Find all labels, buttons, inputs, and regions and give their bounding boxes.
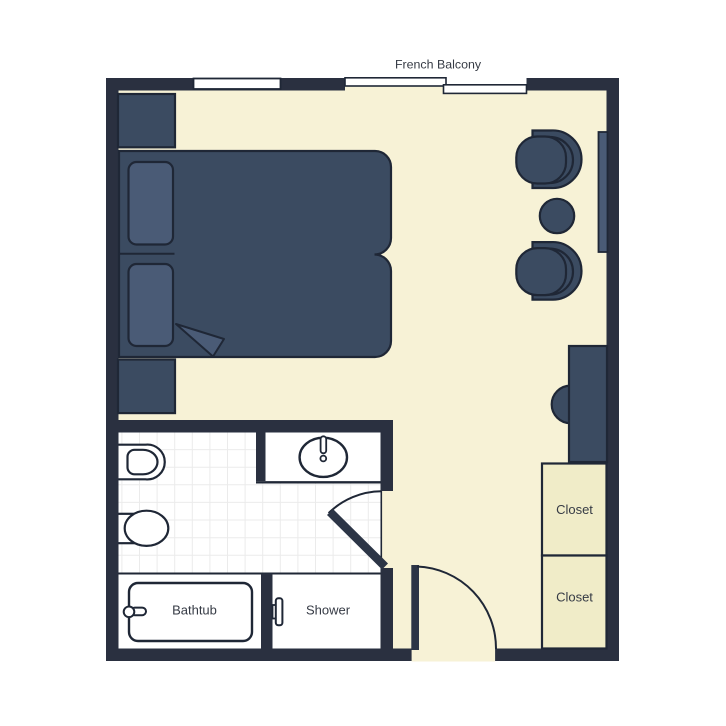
svg-text:French Balcony: French Balcony (395, 58, 482, 72)
svg-text:Closet: Closet (556, 590, 593, 605)
svg-text:Closet: Closet (556, 502, 593, 517)
svg-text:Shower: Shower (306, 603, 351, 618)
svg-text:Bathtub: Bathtub (172, 603, 217, 618)
